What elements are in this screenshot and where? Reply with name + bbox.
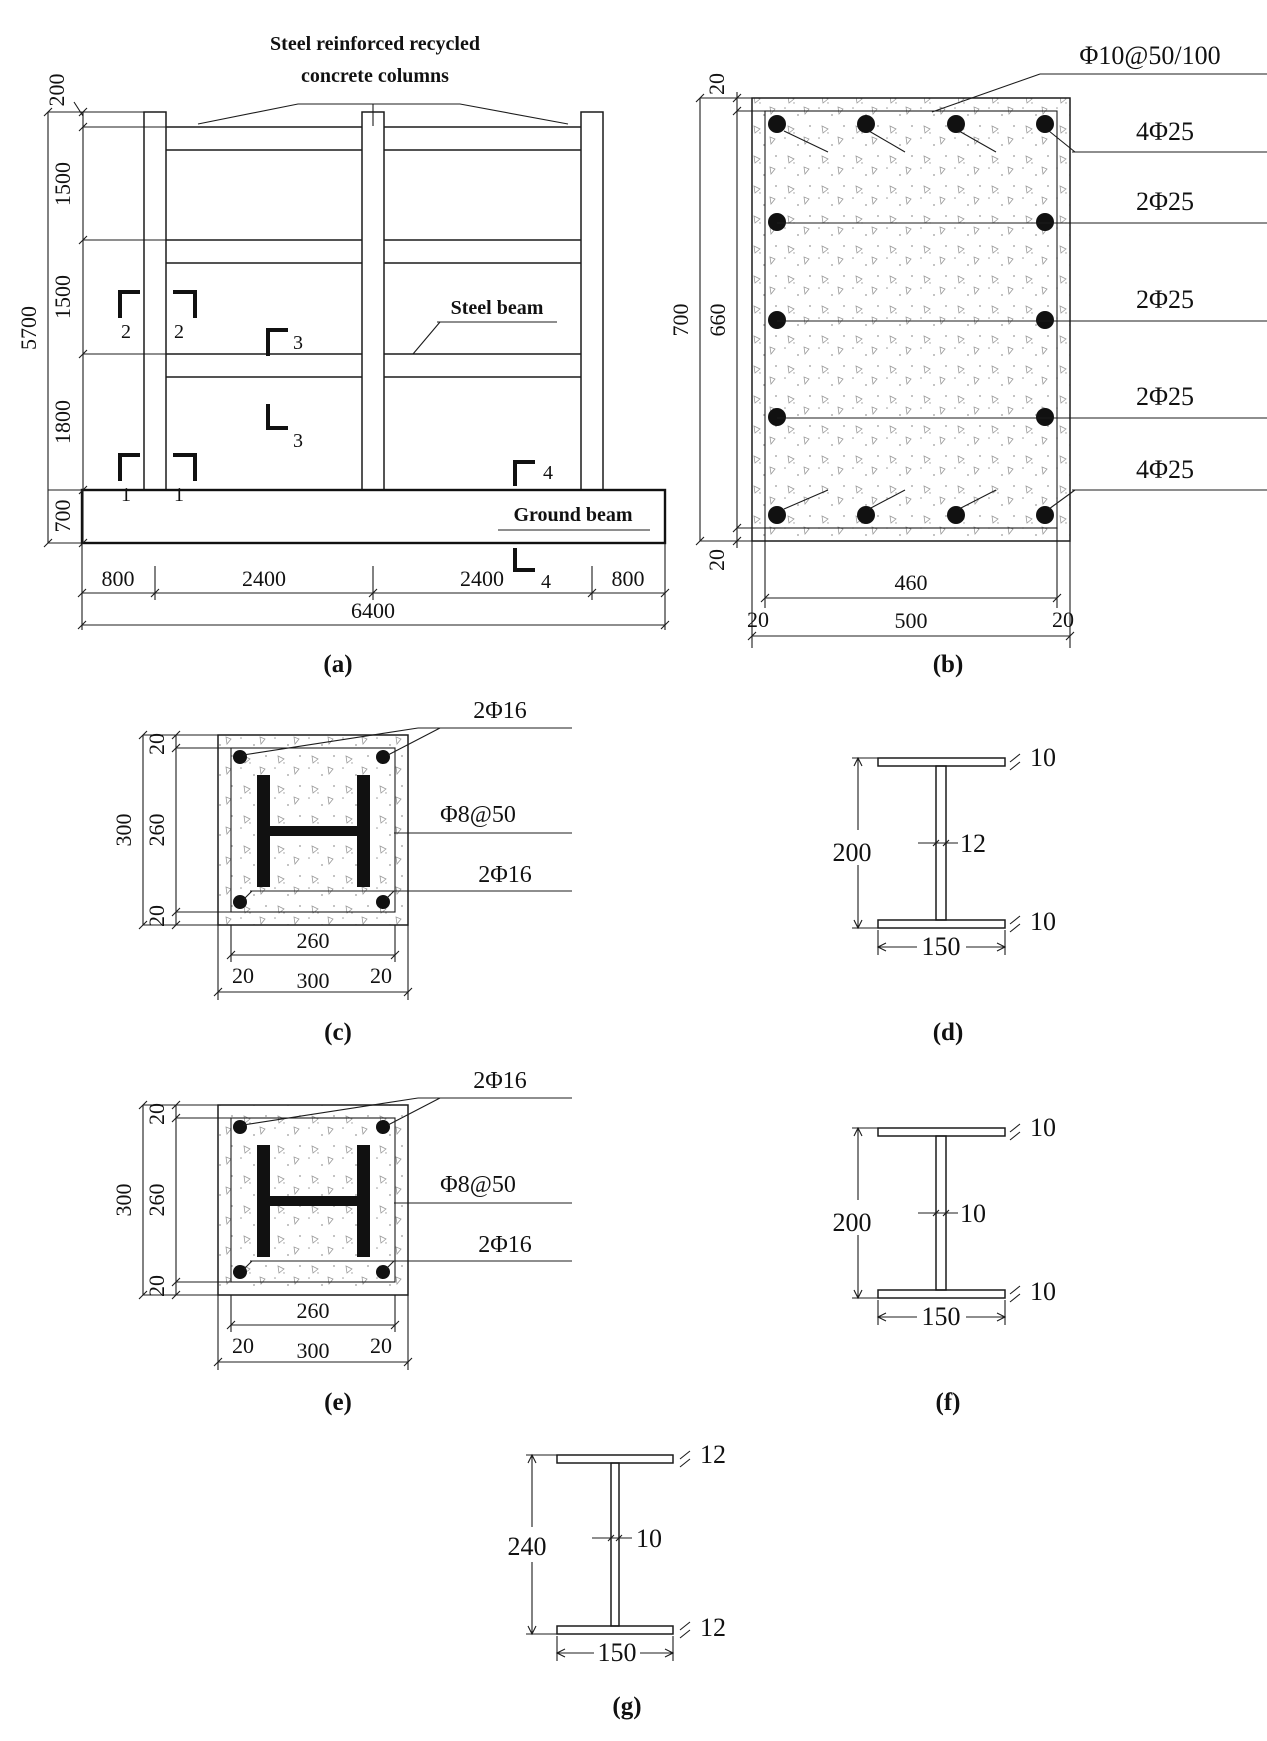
steel-beam-leader (413, 322, 557, 354)
dim-bf-g: 12 (700, 1613, 726, 1642)
dim-20r-c: 20 (370, 963, 392, 988)
dim-260v-e: 260 (144, 1184, 169, 1217)
dim-800-right: 800 (612, 566, 645, 591)
tf-ticks-d (1010, 754, 1020, 770)
section-label-4b: 4 (541, 571, 551, 593)
column-right (581, 112, 603, 490)
dim-200: 200 (44, 74, 69, 107)
dim-300h-e: 300 (297, 1338, 330, 1363)
dim-width-d: 150 (922, 932, 961, 961)
steel-beams (166, 127, 581, 377)
dim-5700: 5700 (16, 306, 41, 350)
bottom-flange-g (557, 1626, 673, 1634)
dim-web-f: 10 (960, 1199, 986, 1228)
dim-bf-f: 10 (1030, 1277, 1056, 1306)
dim-700-b: 700 (668, 304, 693, 337)
title-leader-lines (198, 104, 568, 126)
dim-20-left-b: 20 (747, 607, 769, 632)
bars-bottom-callout: 4Φ25 (1136, 455, 1194, 484)
web-dim-f (918, 1210, 958, 1216)
dim-20b-c: 20 (144, 905, 169, 927)
dim-bf-d: 10 (1030, 907, 1056, 936)
section-marker-2-right (173, 292, 195, 318)
top-flange-f (878, 1128, 1005, 1136)
section-label-1a: 1 (121, 484, 131, 506)
section-label-2b: 2 (174, 321, 184, 343)
dim-500-b: 500 (895, 608, 928, 633)
dim-20t-c: 20 (144, 733, 169, 755)
dim-460-b: 460 (895, 570, 928, 595)
bars-top-callout: 4Φ25 (1136, 117, 1194, 146)
dim-260h-e: 260 (297, 1298, 330, 1323)
dim-300v-c: 300 (111, 814, 136, 847)
dim-20r-e: 20 (370, 1333, 392, 1358)
panel-g-ibeam-section: 240 10 12 12 150 (g) (508, 1440, 727, 1720)
dim-tf-g: 12 (700, 1440, 726, 1469)
dim-20-top-b: 20 (704, 73, 729, 95)
caption-d: (d) (933, 1019, 964, 1046)
bottom-flange-f (878, 1290, 1005, 1298)
stirrup-callout-b: Φ10@50/100 (1079, 41, 1220, 70)
top-bars-callout-c: 2Φ16 (473, 698, 527, 724)
web-dim-g (592, 1535, 632, 1541)
bars-row4-callout: 2Φ25 (1136, 382, 1194, 411)
section-label-3a: 3 (293, 332, 303, 354)
dim-260v-c: 260 (144, 814, 169, 847)
stirrup-callout-c: Φ8@50 (440, 802, 516, 828)
column-left (144, 112, 166, 490)
dim-300h-c: 300 (297, 968, 330, 993)
dim-tf-f: 10 (1030, 1113, 1056, 1142)
dim-260h-c: 260 (297, 928, 330, 953)
steel-beam-label: Steel beam (451, 297, 544, 319)
caption-f: (f) (936, 1389, 961, 1416)
bf-ticks-d (1010, 916, 1020, 932)
panel-a-title-line1: Steel reinforced recycled (270, 33, 480, 55)
dim-height-f: 200 (833, 1208, 872, 1237)
section-marker-4-bottom (515, 548, 535, 570)
section-marker-2-left (120, 292, 140, 318)
dim-20-bottom-b: 20 (704, 549, 729, 571)
top-bars-callout-e: 2Φ16 (473, 1068, 527, 1094)
dim-2400-left: 2400 (242, 566, 286, 591)
panel-e-src-section: 2Φ16 Φ8@50 2Φ16 300 20 260 20 260 20 300… (111, 1068, 572, 1416)
dim-300v-e: 300 (111, 1184, 136, 1217)
top-flange-d (878, 758, 1005, 766)
dim-660-b: 660 (705, 304, 730, 337)
dim-web-g: 10 (636, 1524, 662, 1553)
ground-beam-label: Ground beam (513, 504, 632, 526)
panel-c-src-section: 2Φ16 Φ8@50 2Φ16 300 20 260 20 260 20 300… (111, 698, 572, 1046)
bars-row3-callout: 2Φ25 (1136, 285, 1194, 314)
dim-tf-d: 10 (1030, 743, 1056, 772)
panel-a-frame-elevation: Steel reinforced recycled concrete colum… (16, 33, 669, 678)
caption-b: (b) (933, 651, 964, 678)
dim-1800: 1800 (50, 400, 75, 444)
dim-700: 700 (50, 500, 75, 533)
panel-a-title-line2: concrete columns (301, 65, 449, 87)
tf-ticks-f (1010, 1124, 1020, 1140)
dim-20l-c: 20 (232, 963, 254, 988)
bottom-bars-callout-e: 2Φ16 (478, 1232, 532, 1258)
caption-e: (e) (324, 1389, 352, 1416)
dim-web-d: 12 (960, 829, 986, 858)
bottom-flange-d (878, 920, 1005, 928)
section-label-3b: 3 (293, 430, 303, 452)
section-marker-1-left (120, 455, 140, 481)
caption-a: (a) (323, 651, 352, 678)
dim-height-d: 200 (833, 838, 872, 867)
panel-f-ibeam-section: 200 10 10 10 150 (f) (833, 1113, 1057, 1416)
caption-g: (g) (612, 1693, 641, 1720)
section-label-1b: 1 (174, 484, 184, 506)
stirrup-callout-e: Φ8@50 (440, 1172, 516, 1198)
dim-width-f: 150 (922, 1302, 961, 1331)
web-g (611, 1463, 619, 1626)
section-marker-1-right (173, 455, 195, 481)
section-marker-4-top (515, 462, 535, 486)
dim-6400: 6400 (351, 598, 395, 623)
dim-height-g: 240 (508, 1532, 547, 1561)
dim-20-right-b: 20 (1052, 607, 1074, 632)
dim-width-g: 150 (598, 1638, 637, 1667)
column-middle (362, 112, 384, 490)
dim-20l-e: 20 (232, 1333, 254, 1358)
dim-1500-lower: 1500 (50, 275, 75, 319)
bf-ticks-g (680, 1622, 690, 1638)
section-marker-3-top (268, 330, 288, 356)
section-marker-3-bottom (268, 404, 288, 428)
tf-ticks-g (680, 1451, 690, 1467)
caption-c: (c) (324, 1019, 352, 1046)
panel-b-column-section: Φ10@50/100 4Φ25 2Φ25 2Φ25 2Φ25 4Φ25 20 7… (668, 41, 1267, 678)
dim-800-left: 800 (102, 566, 135, 591)
dim-20t-e: 20 (144, 1103, 169, 1125)
figure-structural-drawings: Steel reinforced recycled concrete colum… (0, 0, 1267, 1741)
bf-ticks-f (1010, 1286, 1020, 1302)
top-flange-g (557, 1455, 673, 1463)
dim-20b-e: 20 (144, 1275, 169, 1297)
panel-d-ibeam-section: 200 12 10 10 150 (d) (833, 743, 1057, 1046)
section-label-2a: 2 (121, 321, 131, 343)
concrete-section-b (752, 98, 1070, 541)
bottom-bars-callout-c: 2Φ16 (478, 862, 532, 888)
dim-1500-upper: 1500 (50, 162, 75, 206)
web-dim-d (918, 840, 958, 846)
dim-2400-right: 2400 (460, 566, 504, 591)
bars-row2-callout: 2Φ25 (1136, 187, 1194, 216)
section-label-4a: 4 (543, 462, 553, 484)
